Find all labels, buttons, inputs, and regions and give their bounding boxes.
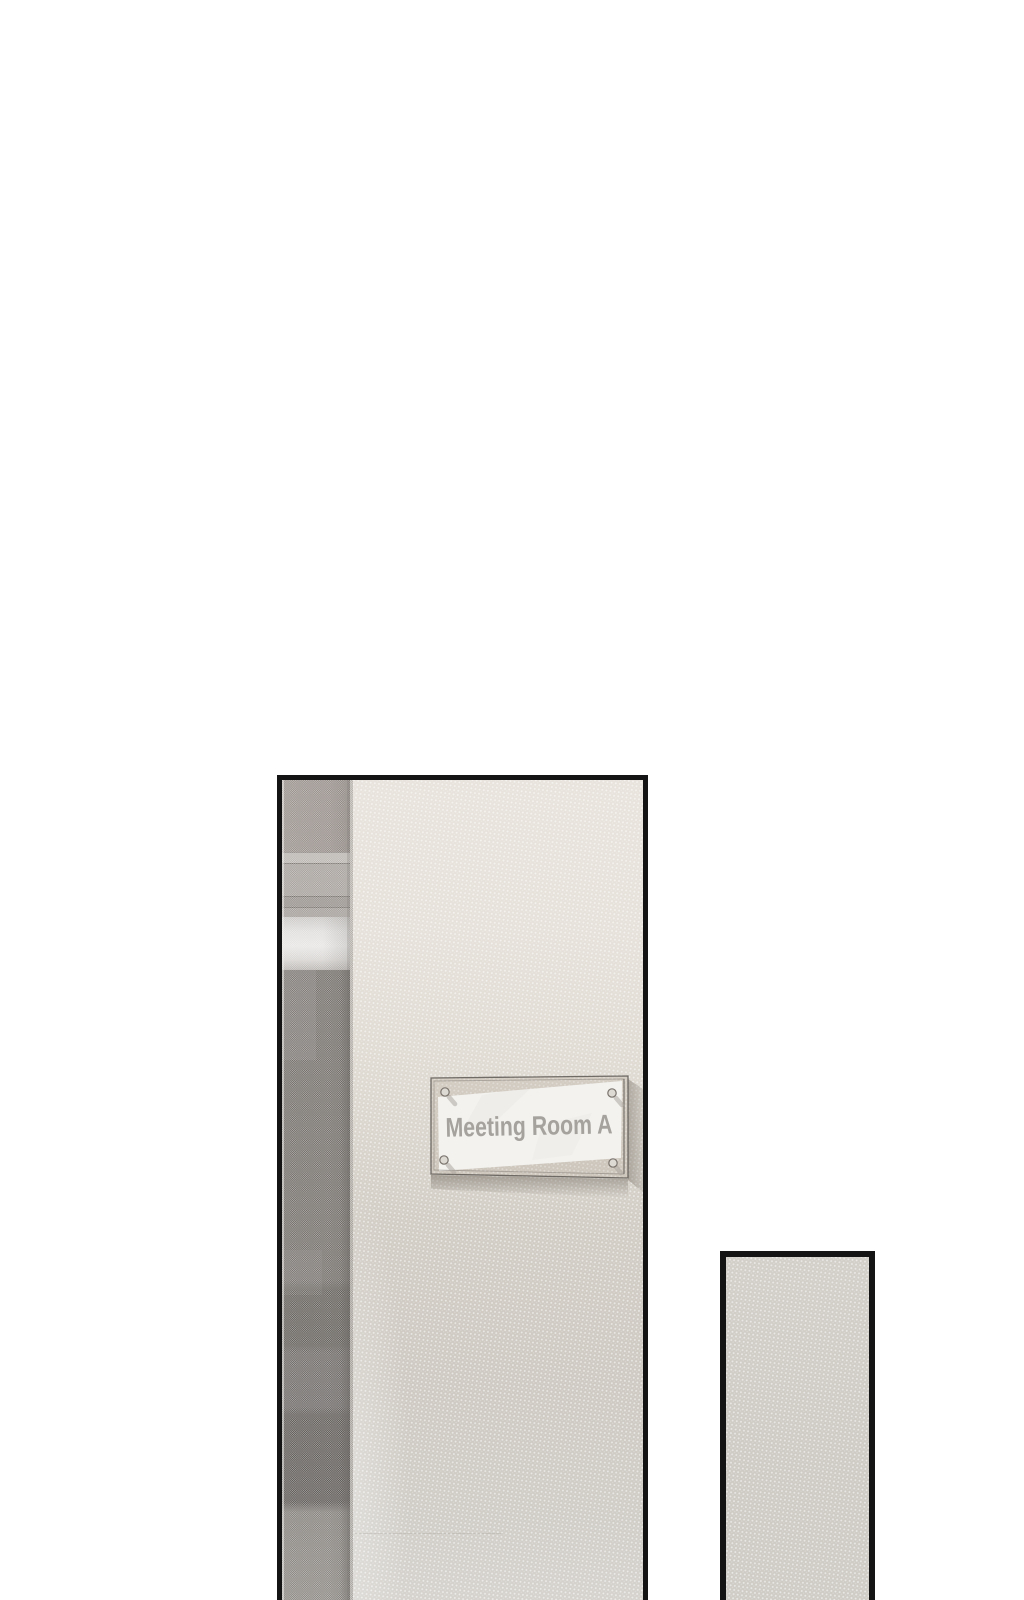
svg-text:Meeting Room A: Meeting Room A [445, 1109, 613, 1142]
